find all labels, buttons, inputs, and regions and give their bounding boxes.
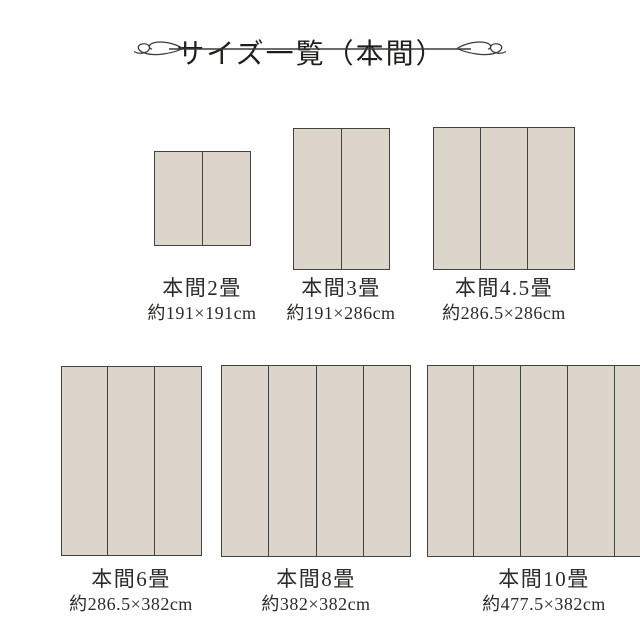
mat-diagram	[61, 366, 202, 556]
mat-name: 本間4.5畳	[442, 275, 566, 301]
mat-size: 約477.5×382cm	[482, 592, 606, 617]
mat-size: 約286.5×382cm	[69, 592, 193, 617]
mat-panel	[107, 367, 154, 555]
mat-size: 約286.5×286cm	[442, 301, 566, 326]
mat-panel	[154, 367, 201, 555]
mat-figure-area	[427, 365, 640, 557]
mat-caption: 本間3畳 約191×286cm	[286, 275, 395, 326]
mat-size: 約382×382cm	[261, 592, 370, 617]
mat-panel	[316, 366, 363, 556]
mat-panel	[155, 152, 202, 245]
mat-panel	[294, 129, 341, 269]
mat-panel	[268, 366, 315, 556]
mat-panel	[473, 366, 520, 556]
mat-diagram	[433, 127, 575, 270]
mat-panel	[428, 366, 474, 556]
mat-caption: 本間10畳 約477.5×382cm	[482, 566, 606, 617]
mat-panel	[341, 129, 389, 269]
mat-caption: 本間8畳 約382×382cm	[261, 566, 370, 617]
mat-diagram	[293, 128, 390, 270]
mat-panel	[363, 366, 410, 556]
mat-panel	[434, 128, 480, 269]
mat-panel	[527, 128, 574, 269]
mat-name: 本間8畳	[261, 566, 370, 592]
mat-name: 本間6畳	[69, 566, 193, 592]
mat-figure-area	[61, 365, 202, 557]
mat-panel	[520, 366, 567, 556]
mat-panel	[480, 128, 527, 269]
mat-figure-area	[221, 365, 411, 557]
mat-item-4-5jo: 本間4.5畳 約286.5×286cm	[384, 127, 624, 326]
mat-diagram	[427, 365, 640, 557]
size-chart-page: サイズ一覧（本間） 本間2畳 約191×191cm 本間3畳 約191×286c…	[0, 0, 640, 640]
mat-caption: 本間4.5畳 約286.5×286cm	[442, 275, 566, 326]
mat-panel	[222, 366, 268, 556]
flourish-divider	[131, 37, 509, 61]
mat-diagram	[221, 365, 411, 557]
mat-item-8jo: 本間8畳 約382×382cm	[196, 365, 436, 617]
mat-name: 本間10畳	[482, 566, 606, 592]
mat-item-10jo: 本間10畳 約477.5×382cm	[424, 365, 640, 617]
mat-figure-area	[293, 127, 390, 270]
mat-name: 本間3畳	[286, 275, 395, 301]
mat-caption: 本間6畳 約286.5×382cm	[69, 566, 193, 617]
mat-panel	[614, 366, 640, 556]
mat-panel	[567, 366, 614, 556]
mat-size: 約191×286cm	[286, 301, 395, 326]
mat-panel	[62, 367, 108, 555]
mat-figure-area	[433, 127, 575, 270]
